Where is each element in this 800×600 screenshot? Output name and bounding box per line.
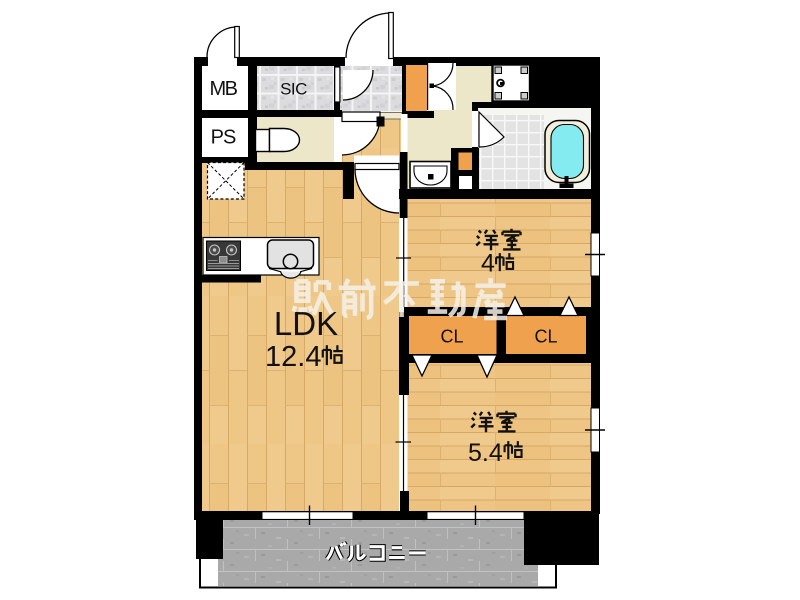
svg-text:12.4: 12.4 bbox=[265, 341, 321, 373]
svg-text:4: 4 bbox=[481, 250, 495, 278]
svg-text:MB: MB bbox=[210, 78, 238, 100]
svg-text:PS: PS bbox=[211, 127, 236, 149]
svg-text:SIC: SIC bbox=[280, 80, 307, 99]
svg-text:CL: CL bbox=[534, 327, 557, 347]
svg-text:CL: CL bbox=[440, 327, 463, 347]
svg-text:5.4: 5.4 bbox=[468, 439, 503, 467]
